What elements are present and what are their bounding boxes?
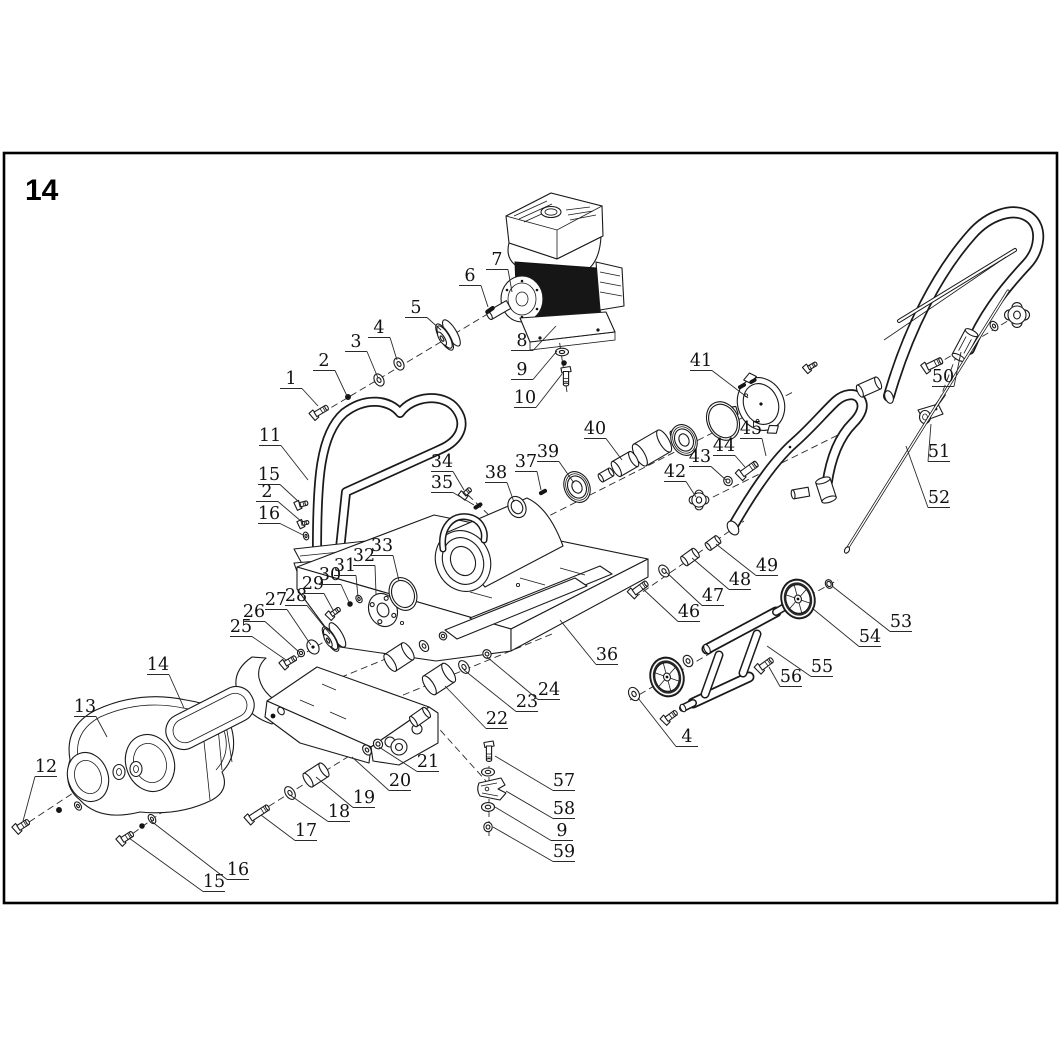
callout-17: 17 (261, 815, 317, 841)
part-number: 37 (515, 452, 537, 472)
hardware-bearing-16 (559, 467, 595, 507)
part-number: 9 (516, 360, 527, 380)
callout-53: 53 (832, 586, 912, 632)
hardware-ringp-37 (824, 578, 834, 589)
part-number: 34 (431, 452, 453, 472)
throttle-cable (843, 291, 1008, 554)
part-number: 35 (431, 473, 453, 493)
hardware-cyl-20 (597, 467, 615, 483)
hardware-nut-69 (484, 822, 492, 831)
hardware-dot-61 (56, 807, 61, 812)
handlebar-pivot-sleeve (815, 476, 837, 505)
hardware-cyl-32 (704, 535, 722, 551)
part-number: 1 (285, 369, 296, 389)
callout-15: 15 (129, 838, 225, 892)
hardware-washer-2 (372, 372, 386, 388)
hardware-bolt-8 (561, 367, 571, 386)
part-number: 48 (729, 570, 751, 590)
part-number: 10 (514, 388, 536, 408)
callout-12: 12 (23, 757, 57, 821)
callout-9: 9 (511, 351, 557, 380)
page-number: 14 (25, 174, 59, 207)
callout-54: 54 (812, 608, 881, 647)
part-number: 44 (713, 436, 735, 456)
hardware-bolt-28 (735, 459, 761, 482)
hardware-washer-11 (302, 531, 309, 540)
part-number: 3 (350, 332, 361, 352)
hardware-pin-13 (473, 502, 482, 510)
hardware-washerF-68 (482, 803, 495, 812)
callout-36: 36 (560, 620, 618, 665)
part-number: 8 (516, 331, 527, 351)
part-number: 56 (780, 667, 802, 687)
part-number: 58 (553, 799, 575, 819)
hardware-bolt-9 (294, 498, 309, 511)
parts-manual-page: 14 (0, 0, 1061, 1061)
callout-6: 6 (459, 266, 488, 307)
part-number: 52 (928, 488, 950, 508)
part-number: 47 (702, 586, 724, 606)
part-number: 36 (596, 645, 618, 665)
fuel-filler-cap (541, 207, 561, 218)
part-number: 51 (928, 442, 950, 462)
hardware-washer-30 (657, 563, 672, 579)
callout-38: 38 (485, 463, 514, 502)
callout-3: 3 (345, 332, 378, 378)
part-number: 16 (227, 860, 249, 880)
hardware-star-26 (689, 490, 709, 510)
callout-45: 45 (740, 419, 766, 456)
hardware-nut-52 (296, 648, 306, 658)
part-number: 4 (373, 318, 384, 338)
part-number: 24 (538, 680, 560, 700)
hardware-dot-56 (348, 602, 353, 607)
hardware-bolt-25 (802, 359, 819, 374)
callout-42: 42 (664, 462, 696, 497)
hardware-bolt-60 (11, 817, 31, 835)
hardware-bolt-63 (115, 829, 135, 847)
hardware-cyl-73 (855, 376, 883, 398)
part-number: 16 (258, 504, 280, 524)
hardware-wheel-36 (776, 575, 819, 622)
part-number: 59 (553, 842, 575, 862)
callout-41: 41 (690, 351, 748, 398)
part-number: 20 (389, 771, 411, 791)
callout-51: 51 (928, 424, 950, 462)
part-number: 23 (516, 692, 538, 712)
part-number: 45 (740, 419, 762, 439)
hardware-bolt-0 (309, 403, 331, 422)
hardware-washer-49 (456, 659, 471, 676)
base-plate-36 (297, 498, 648, 661)
part-number: 22 (486, 709, 508, 729)
part-number: 11 (259, 426, 281, 446)
callout-58: 58 (506, 791, 575, 819)
hardware-wheel-34 (645, 653, 688, 700)
callout-18: 18 (290, 795, 350, 822)
part-number: 17 (295, 821, 317, 841)
hardware-washer-65 (147, 813, 158, 825)
part-number: 4 (681, 727, 692, 747)
hardware-bolt-40 (243, 802, 271, 826)
part-number: 2 (318, 351, 329, 371)
hardware-bolt-51 (278, 653, 298, 671)
hardware-washerF-67 (482, 768, 495, 776)
part-number: 26 (243, 602, 265, 622)
part-number: 7 (491, 250, 502, 270)
callout-2: 2 (313, 351, 347, 396)
part-number: 19 (353, 788, 375, 808)
hardware-washer-35 (681, 654, 695, 669)
part-number: 14 (147, 655, 169, 675)
callout-4: 4 (368, 318, 397, 360)
callout-40: 40 (584, 419, 622, 460)
callout-56: 56 (769, 667, 802, 687)
engine (485, 193, 624, 350)
part-number: 42 (664, 462, 686, 482)
callout-23: 23 (464, 670, 538, 712)
pivot-stub (791, 487, 810, 499)
part-number: 39 (537, 442, 559, 462)
part-number: 54 (859, 627, 881, 647)
callout-1: 1 (280, 369, 318, 406)
hardware-dot-7 (562, 361, 567, 366)
cable-clamp (478, 778, 506, 800)
part-number: 43 (689, 447, 711, 467)
hardware-cyl-42 (301, 761, 331, 788)
part-number: 33 (371, 536, 393, 556)
part-number: 57 (553, 771, 575, 791)
part-number: 9 (556, 821, 567, 841)
part-number: 18 (328, 802, 350, 822)
part-number: 49 (756, 556, 778, 576)
part-number: 6 (464, 266, 475, 286)
hardware-pulley-4 (432, 317, 464, 352)
part-number: 21 (417, 752, 439, 772)
hardware-cyl-48 (420, 661, 458, 697)
callout-44: 44 (713, 436, 745, 467)
part-number: 40 (584, 419, 606, 439)
hardware-star-70 (1005, 303, 1030, 328)
hardware-pin-14 (539, 489, 548, 496)
assembly-axis-18 (433, 722, 486, 781)
callout-47: 47 (666, 572, 724, 606)
callout-22: 22 (445, 686, 508, 729)
exploded-diagram: 14 (0, 0, 1061, 1061)
hardware-dot-64 (140, 824, 145, 829)
hardware-bolt-66 (484, 741, 494, 761)
part-number: 5 (410, 298, 421, 318)
part-number: 46 (678, 602, 700, 622)
part-number: 38 (485, 463, 507, 483)
hardware-washer-3 (392, 356, 406, 372)
part-number: 53 (890, 612, 912, 632)
callout-57: 57 (495, 756, 575, 791)
hardware-washerF-6 (556, 348, 569, 356)
callout-5: 5 (405, 298, 441, 330)
part-number: 12 (35, 757, 57, 777)
callout-46: 46 (642, 588, 700, 622)
callout-25: 25 (230, 617, 286, 660)
part-number: 13 (74, 697, 96, 717)
part-number: 41 (690, 351, 712, 371)
part-number: 27 (265, 590, 287, 610)
hardware-nut-27 (722, 475, 734, 487)
hardware-washerD-53 (304, 638, 321, 657)
hardware-bolt-39 (660, 708, 680, 726)
part-number: 2 (261, 482, 272, 502)
part-number: 50 (932, 367, 954, 387)
part-number: 55 (811, 657, 833, 677)
engine-deck (236, 657, 438, 765)
callout-16: 16 (151, 821, 249, 880)
